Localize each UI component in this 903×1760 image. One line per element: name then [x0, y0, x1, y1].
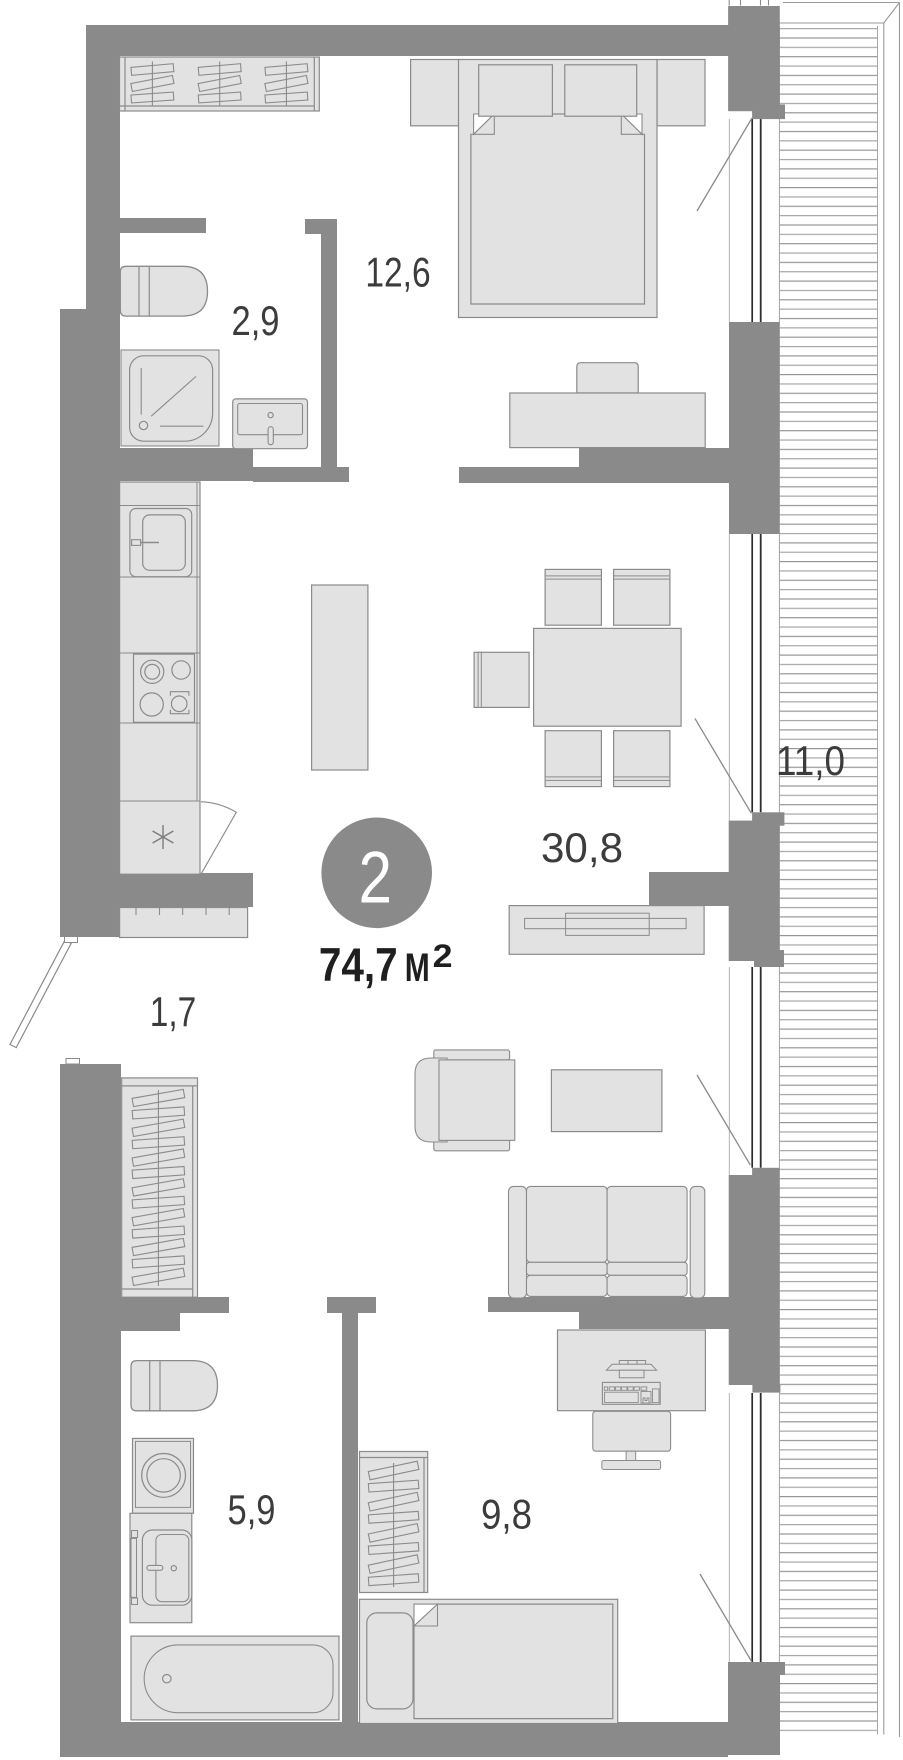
svg-text:12,6: 12,6 [365, 248, 430, 295]
svg-text:74,7: 74,7 [319, 939, 398, 992]
svg-text:2: 2 [433, 938, 453, 974]
svg-text:М: М [405, 946, 430, 990]
svg-text:2: 2 [358, 835, 392, 918]
svg-text:1,7: 1,7 [150, 988, 197, 1035]
svg-text:30,8: 30,8 [541, 824, 623, 871]
svg-text:9,8: 9,8 [481, 1491, 532, 1538]
svg-text:2,9: 2,9 [232, 297, 280, 344]
svg-text:5,9: 5,9 [228, 1486, 276, 1533]
svg-text:11,0: 11,0 [776, 737, 845, 784]
